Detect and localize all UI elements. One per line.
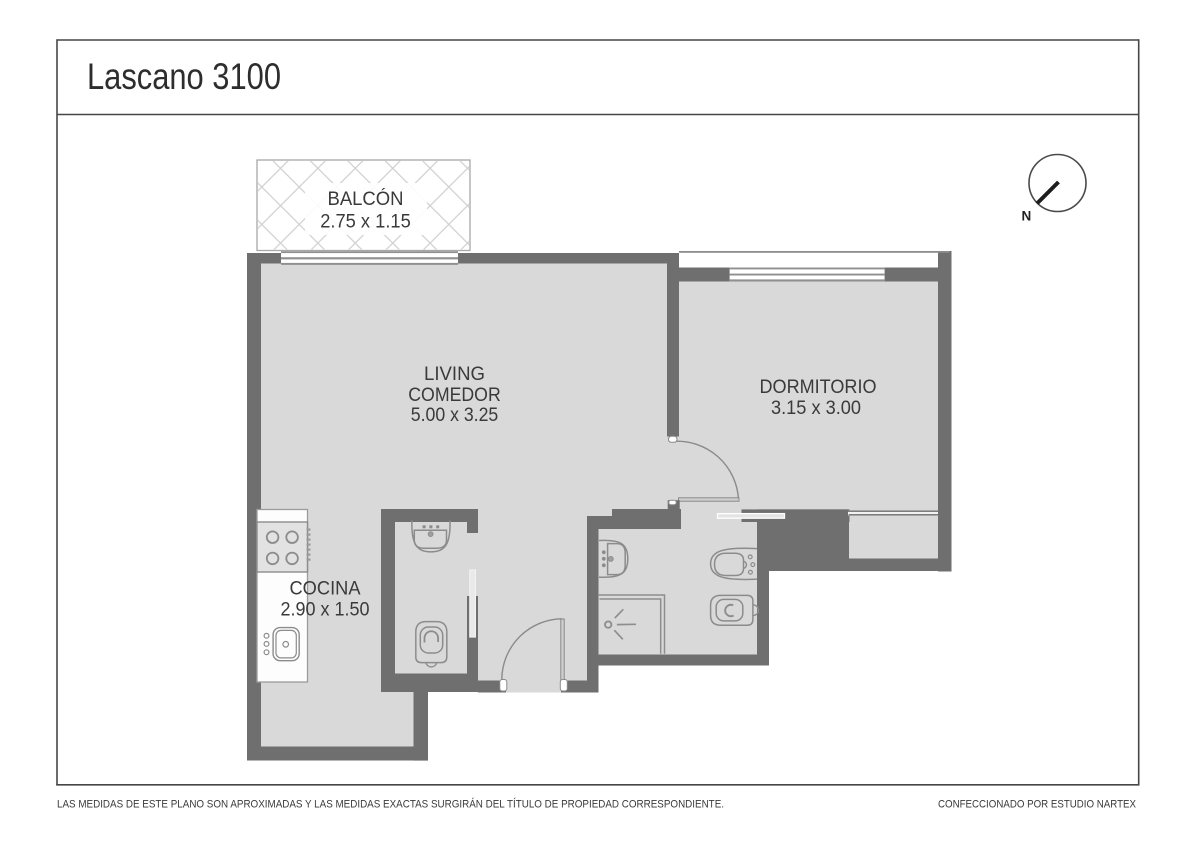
svg-text:COMEDOR: COMEDOR [408,384,501,406]
svg-text:LAS MEDIDAS DE ESTE PLANO SON: LAS MEDIDAS DE ESTE PLANO SON APROXIMADA… [57,798,724,811]
svg-text:2.75 x 1.15: 2.75 x 1.15 [320,212,411,233]
svg-text:CONFECCIONADO POR ESTUDIO NART: CONFECCIONADO POR ESTUDIO NARTEX [938,799,1136,811]
svg-text:5.00 x 3.25: 5.00 x 3.25 [411,404,499,426]
svg-text:N: N [1022,209,1032,224]
svg-text:Lascano 3100: Lascano 3100 [87,56,281,97]
svg-text:LIVING: LIVING [424,363,485,385]
svg-text:BALCÓN: BALCÓN [328,188,404,210]
svg-text:3.15 x 3.00: 3.15 x 3.00 [771,397,861,419]
svg-text:COCINA: COCINA [290,577,361,599]
svg-text:DORMITORIO: DORMITORIO [760,376,877,398]
svg-text:2.90 x 1.50: 2.90 x 1.50 [281,599,370,621]
